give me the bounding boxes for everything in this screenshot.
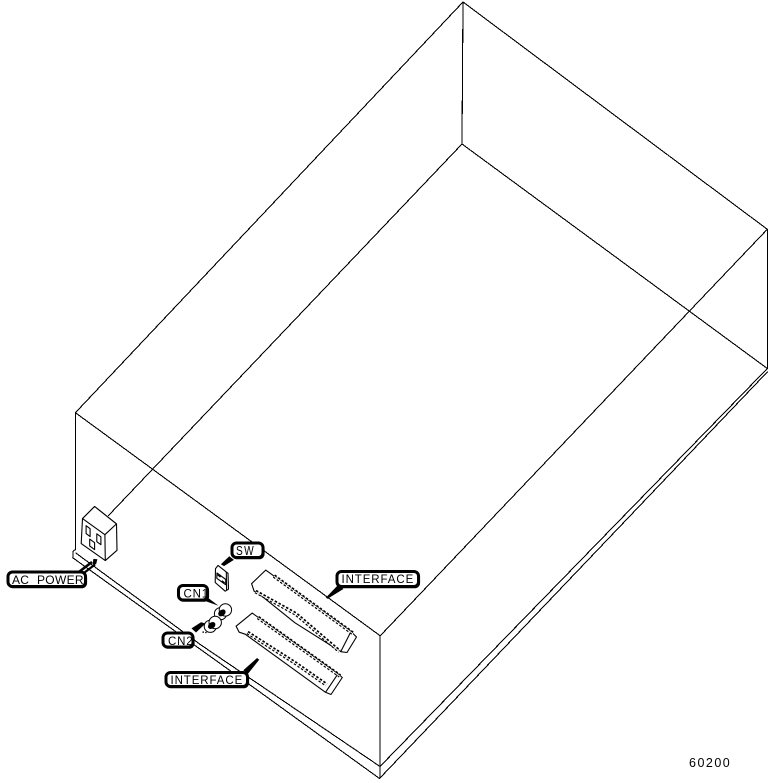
svg-text:60200: 60200 — [689, 756, 731, 770]
svg-text:SW: SW — [236, 544, 255, 558]
svg-text:INTERFACE: INTERFACE — [171, 675, 244, 687]
svg-text:ACPOWER: ACPOWER — [12, 573, 84, 587]
svg-text:INTERFACE: INTERFACE — [342, 574, 415, 586]
svg-text:CN1: CN1 — [184, 588, 209, 600]
svg-text:CN2: CN2 — [168, 636, 193, 648]
